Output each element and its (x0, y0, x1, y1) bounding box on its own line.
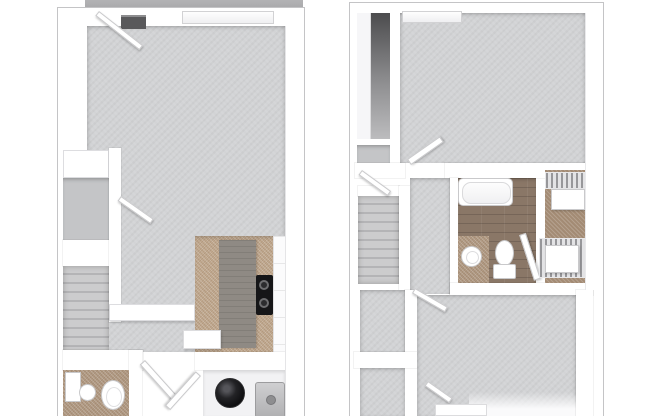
window-sill (435, 404, 487, 416)
staircase-up (358, 196, 399, 284)
half-wall-ledge (109, 304, 195, 321)
wall-vent-icon (121, 15, 146, 29)
stove-burner-icon (259, 280, 269, 290)
bedroom1-floor (400, 13, 585, 163)
entry-closet-floor (63, 178, 109, 240)
pedestal-sink (461, 246, 482, 267)
window (402, 11, 462, 23)
bedroom2-wall (576, 290, 593, 416)
bathroom-wall (129, 350, 142, 416)
floorplan-upper-level (349, 0, 606, 416)
washer-knob-icon (266, 395, 276, 405)
sink-basin (466, 251, 479, 264)
wardrobe-shelf (357, 13, 371, 139)
stove-burner-icon (259, 298, 269, 308)
closet-floor (360, 290, 405, 352)
dresser (551, 189, 585, 210)
toilet-seat (106, 387, 122, 407)
dresser (545, 245, 579, 273)
stove-cooktop (256, 275, 273, 315)
floorplan-image (0, 0, 652, 416)
bathtub-basin (462, 182, 511, 204)
window (182, 11, 274, 24)
utility-wall (195, 352, 285, 370)
toilet (101, 380, 125, 410)
bathtub (458, 178, 513, 206)
washer (255, 382, 285, 416)
exterior-wall-right (285, 26, 299, 416)
hallway-floor (410, 178, 450, 294)
staircase-down (63, 266, 109, 352)
toilet (495, 240, 514, 266)
kitchen-island-counter (219, 240, 256, 348)
floorplan-lower-level (57, 0, 307, 416)
closet-niche (357, 145, 390, 164)
wall-segment (354, 352, 417, 368)
interior-wall (109, 148, 121, 322)
pedestal-sink (79, 384, 96, 401)
bathroom-vanity (65, 372, 81, 402)
wardrobe-mirror-doors (370, 13, 390, 139)
exterior-wall-right (585, 13, 594, 290)
entry-nook-floor (360, 368, 405, 416)
wall-segment (63, 240, 109, 266)
wardrobe-closet (357, 13, 390, 139)
closet-shelf (63, 150, 109, 178)
kitchen-counter (183, 330, 221, 349)
bathroom-wall (450, 283, 593, 295)
toilet-tank (493, 264, 516, 279)
water-heater (215, 378, 245, 408)
bathroom-wall (450, 178, 458, 295)
